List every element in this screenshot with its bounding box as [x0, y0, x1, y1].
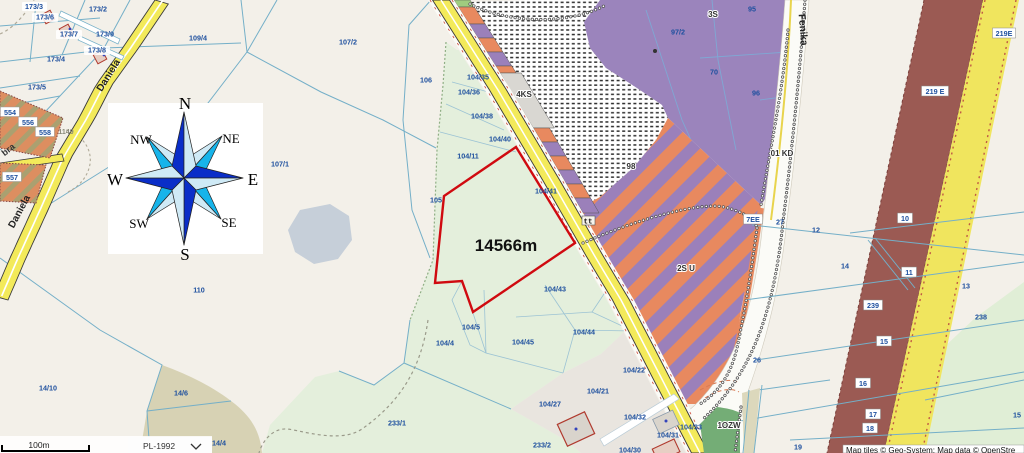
svg-text:1149: 1149 [58, 129, 73, 136]
svg-text:104/38: 104/38 [471, 112, 493, 121]
svg-text:173/5: 173/5 [28, 83, 46, 92]
svg-text:233/2: 233/2 [533, 441, 551, 450]
svg-text:1OZW: 1OZW [717, 421, 741, 430]
svg-text:104/27: 104/27 [539, 400, 561, 409]
svg-text:10: 10 [901, 214, 909, 223]
svg-text:173/4: 173/4 [47, 55, 65, 64]
svg-text:NW: NW [130, 132, 152, 147]
svg-text:11: 11 [905, 268, 913, 277]
svg-text:14: 14 [841, 262, 849, 271]
svg-text:70: 70 [710, 68, 718, 77]
svg-text:104/43: 104/43 [544, 285, 566, 294]
svg-text:18: 18 [866, 424, 874, 433]
svg-text:2S U: 2S U [677, 264, 695, 273]
svg-text:98: 98 [627, 162, 636, 171]
svg-text:13: 13 [962, 282, 970, 291]
svg-text:14/10: 14/10 [39, 384, 57, 393]
svg-text:106: 106 [420, 76, 432, 85]
svg-text:01 KD: 01 KD [771, 149, 794, 158]
svg-text:558: 558 [39, 128, 51, 137]
svg-text:104/22: 104/22 [623, 366, 645, 375]
svg-text:PL-1992: PL-1992 [143, 441, 175, 451]
svg-text:12: 12 [812, 226, 820, 235]
svg-text:7EE: 7EE [746, 215, 760, 224]
svg-text:15: 15 [1013, 411, 1021, 420]
svg-text:219 E: 219 E [926, 87, 945, 96]
svg-text:219E: 219E [996, 29, 1013, 38]
svg-text:173/6: 173/6 [36, 13, 54, 22]
svg-text:27: 27 [776, 218, 784, 227]
svg-text:233/1: 233/1 [388, 419, 406, 428]
svg-text:173/8: 173/8 [88, 46, 106, 55]
svg-text:16: 16 [859, 379, 867, 388]
svg-text:104/33: 104/33 [680, 423, 702, 432]
svg-text:104/4: 104/4 [436, 339, 454, 348]
svg-text:96: 96 [752, 89, 760, 98]
svg-text:104/32: 104/32 [624, 413, 646, 422]
svg-text:3S: 3S [708, 10, 718, 19]
svg-text:173/3: 173/3 [25, 2, 43, 11]
svg-text:97/2: 97/2 [671, 28, 685, 37]
svg-text:554: 554 [4, 108, 16, 117]
svg-text:238: 238 [975, 313, 987, 322]
svg-text:E: E [248, 170, 258, 189]
svg-text:557: 557 [6, 173, 18, 182]
svg-text:14566m: 14566m [475, 236, 537, 255]
svg-text:104/11: 104/11 [457, 152, 479, 161]
svg-text:107/1: 107/1 [271, 160, 289, 169]
svg-text:104/31: 104/31 [657, 431, 679, 440]
svg-text:104/44: 104/44 [573, 328, 595, 337]
svg-text:17: 17 [869, 410, 877, 419]
svg-text:104/30: 104/30 [619, 446, 641, 453]
svg-text:SW: SW [129, 216, 149, 231]
svg-text:19: 19 [794, 443, 802, 452]
svg-text:SE: SE [221, 215, 236, 230]
svg-text:95: 95 [748, 5, 756, 14]
svg-text:W: W [107, 170, 124, 189]
svg-text:110: 110 [193, 286, 205, 295]
svg-text:104/35: 104/35 [467, 73, 489, 82]
svg-text:100m: 100m [28, 440, 49, 450]
svg-text:173/7: 173/7 [60, 30, 78, 39]
svg-text:4KS: 4KS [516, 90, 532, 99]
svg-text:14/6: 14/6 [174, 389, 188, 398]
svg-text:NE: NE [222, 131, 239, 146]
svg-text:104/5: 104/5 [462, 323, 480, 332]
svg-text:173/2: 173/2 [89, 5, 107, 14]
svg-text:26: 26 [753, 356, 761, 365]
svg-text:173/9: 173/9 [96, 30, 114, 39]
svg-text:14/4: 14/4 [212, 439, 226, 448]
svg-text:104/45: 104/45 [512, 338, 534, 347]
svg-text:104/21: 104/21 [587, 387, 609, 396]
svg-text:104/40: 104/40 [489, 135, 511, 144]
svg-text:N: N [179, 94, 191, 113]
svg-text:556: 556 [22, 118, 34, 127]
svg-text:109/4: 109/4 [189, 34, 207, 43]
svg-text:105: 105 [430, 196, 442, 205]
svg-text:Map tiles © Geo-System; Map da: Map tiles © Geo-System; Map data © OpenS… [846, 446, 1016, 453]
svg-text:tt: tt [583, 219, 592, 227]
svg-text:239: 239 [867, 301, 879, 310]
svg-text:S: S [180, 245, 189, 264]
svg-text:104/36: 104/36 [458, 88, 480, 97]
svg-text:15: 15 [880, 337, 888, 346]
svg-text:107/2: 107/2 [339, 38, 357, 47]
svg-text:104/41: 104/41 [535, 187, 557, 196]
